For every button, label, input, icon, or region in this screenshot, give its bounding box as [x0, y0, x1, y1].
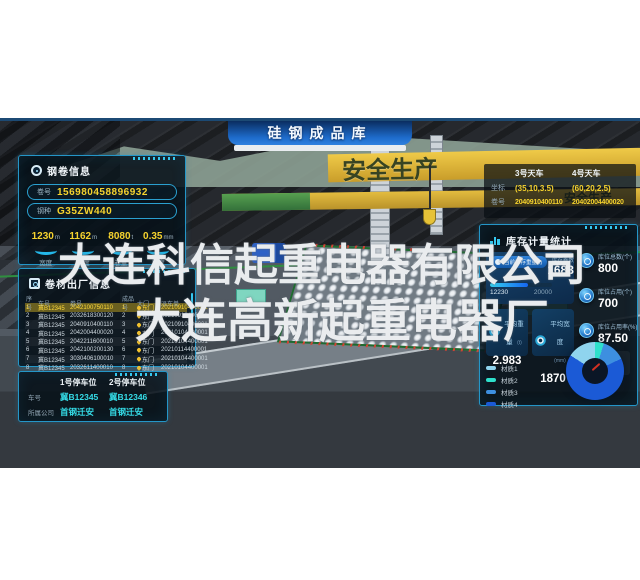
panel-title: 钢卷信息 [47, 163, 91, 178]
company-label: 所属公司 [28, 407, 60, 417]
coord-label: 坐标 [491, 183, 515, 193]
slots-total-stat: 库位总数(个) 800 [579, 252, 637, 283]
coil-number-value: 156980458896932 [57, 187, 148, 198]
location-pin-icon [136, 356, 142, 362]
material-legend: 材质1 材质2 材质3 材质4 [486, 362, 574, 410]
field-label: 钢种 [37, 206, 51, 216]
spot1-plate: 冀B12345 [60, 391, 109, 403]
legend-swatch [486, 366, 496, 370]
spot2-company: 首钢迁安 [109, 406, 158, 418]
parking-spot-1-title: 1号停车位 [60, 377, 109, 388]
steel-grade-field: 钢种 G35ZW440 [27, 203, 177, 219]
parking-panel: 1号停车位 2号停车位 车号 冀B12345 冀B12346 所属公司 首钢迁安… [18, 371, 168, 422]
field-label: 卷号 [37, 187, 51, 197]
legend-item[interactable]: 材质4 [486, 398, 574, 410]
steel-grade-value: G35ZW440 [57, 206, 112, 217]
document-search-icon [29, 278, 40, 289]
hoist-cable [429, 165, 431, 211]
coil-badge-icon [579, 323, 594, 338]
legend-swatch [486, 378, 496, 382]
hoist-hook [423, 209, 436, 225]
coil-label: 卷号 [491, 197, 515, 207]
app-window: 安全生产 安全生产 硅钢成品库 钢卷信息 卷号 156980458896932 … [0, 0, 640, 580]
spot1-company: 首钢迁安 [60, 406, 109, 418]
location-pin-icon [136, 365, 142, 371]
legend-swatch [486, 390, 496, 394]
girder-green-end [222, 193, 310, 211]
crane-status-panel: 3号天车 4号天车 坐标 (35,10,3.5) (60,20,2.5) 卷号 … [484, 164, 636, 218]
legend-swatch [486, 402, 496, 406]
watermark-line-1: 大连科信起重电器有限公司 [58, 229, 586, 293]
spot2-plate: 冀B12346 [109, 391, 158, 403]
crane3-coord: (35,10,3.5) [515, 184, 572, 193]
watermark-line-2: 大连高新起重电器厂 [135, 285, 549, 351]
coil-number-field: 卷号 156980458896932 [27, 184, 177, 200]
crane4-coord: (60,20,2.5) [572, 184, 629, 193]
warehouse-banner: 硅钢成品库 [228, 121, 412, 145]
donut-needle [592, 363, 601, 371]
parking-spot-2-title: 2号停车位 [109, 377, 158, 388]
banner-base [234, 145, 406, 151]
donut-hole [582, 358, 608, 384]
avg-width-label: 平均宽度 [550, 321, 570, 346]
slots-used-stat: 库位占用(个) 700 [579, 287, 637, 318]
gauge-icon [31, 165, 42, 176]
crane3-coil: 2040910400110 [515, 199, 572, 206]
crane3-name: 3号天车 [515, 168, 572, 179]
metric-value: 1230 [32, 231, 54, 242]
warehouse-banner-title: 硅钢成品库 [268, 123, 373, 143]
crane4-coil: 20402004400020 [572, 199, 629, 206]
avg-width-unit: (mm) [554, 358, 566, 364]
table-row[interactable]: 7冀B1234530304061000107东门20210104400001 [25, 355, 187, 364]
material-donut [566, 342, 624, 400]
arc-decoration [35, 246, 57, 255]
coil-info-header: 钢卷信息 [27, 158, 177, 181]
plate-label: 车号 [28, 392, 60, 402]
crane4-name: 4号天车 [572, 168, 629, 179]
legend-item[interactable]: 材质3 [486, 386, 574, 398]
